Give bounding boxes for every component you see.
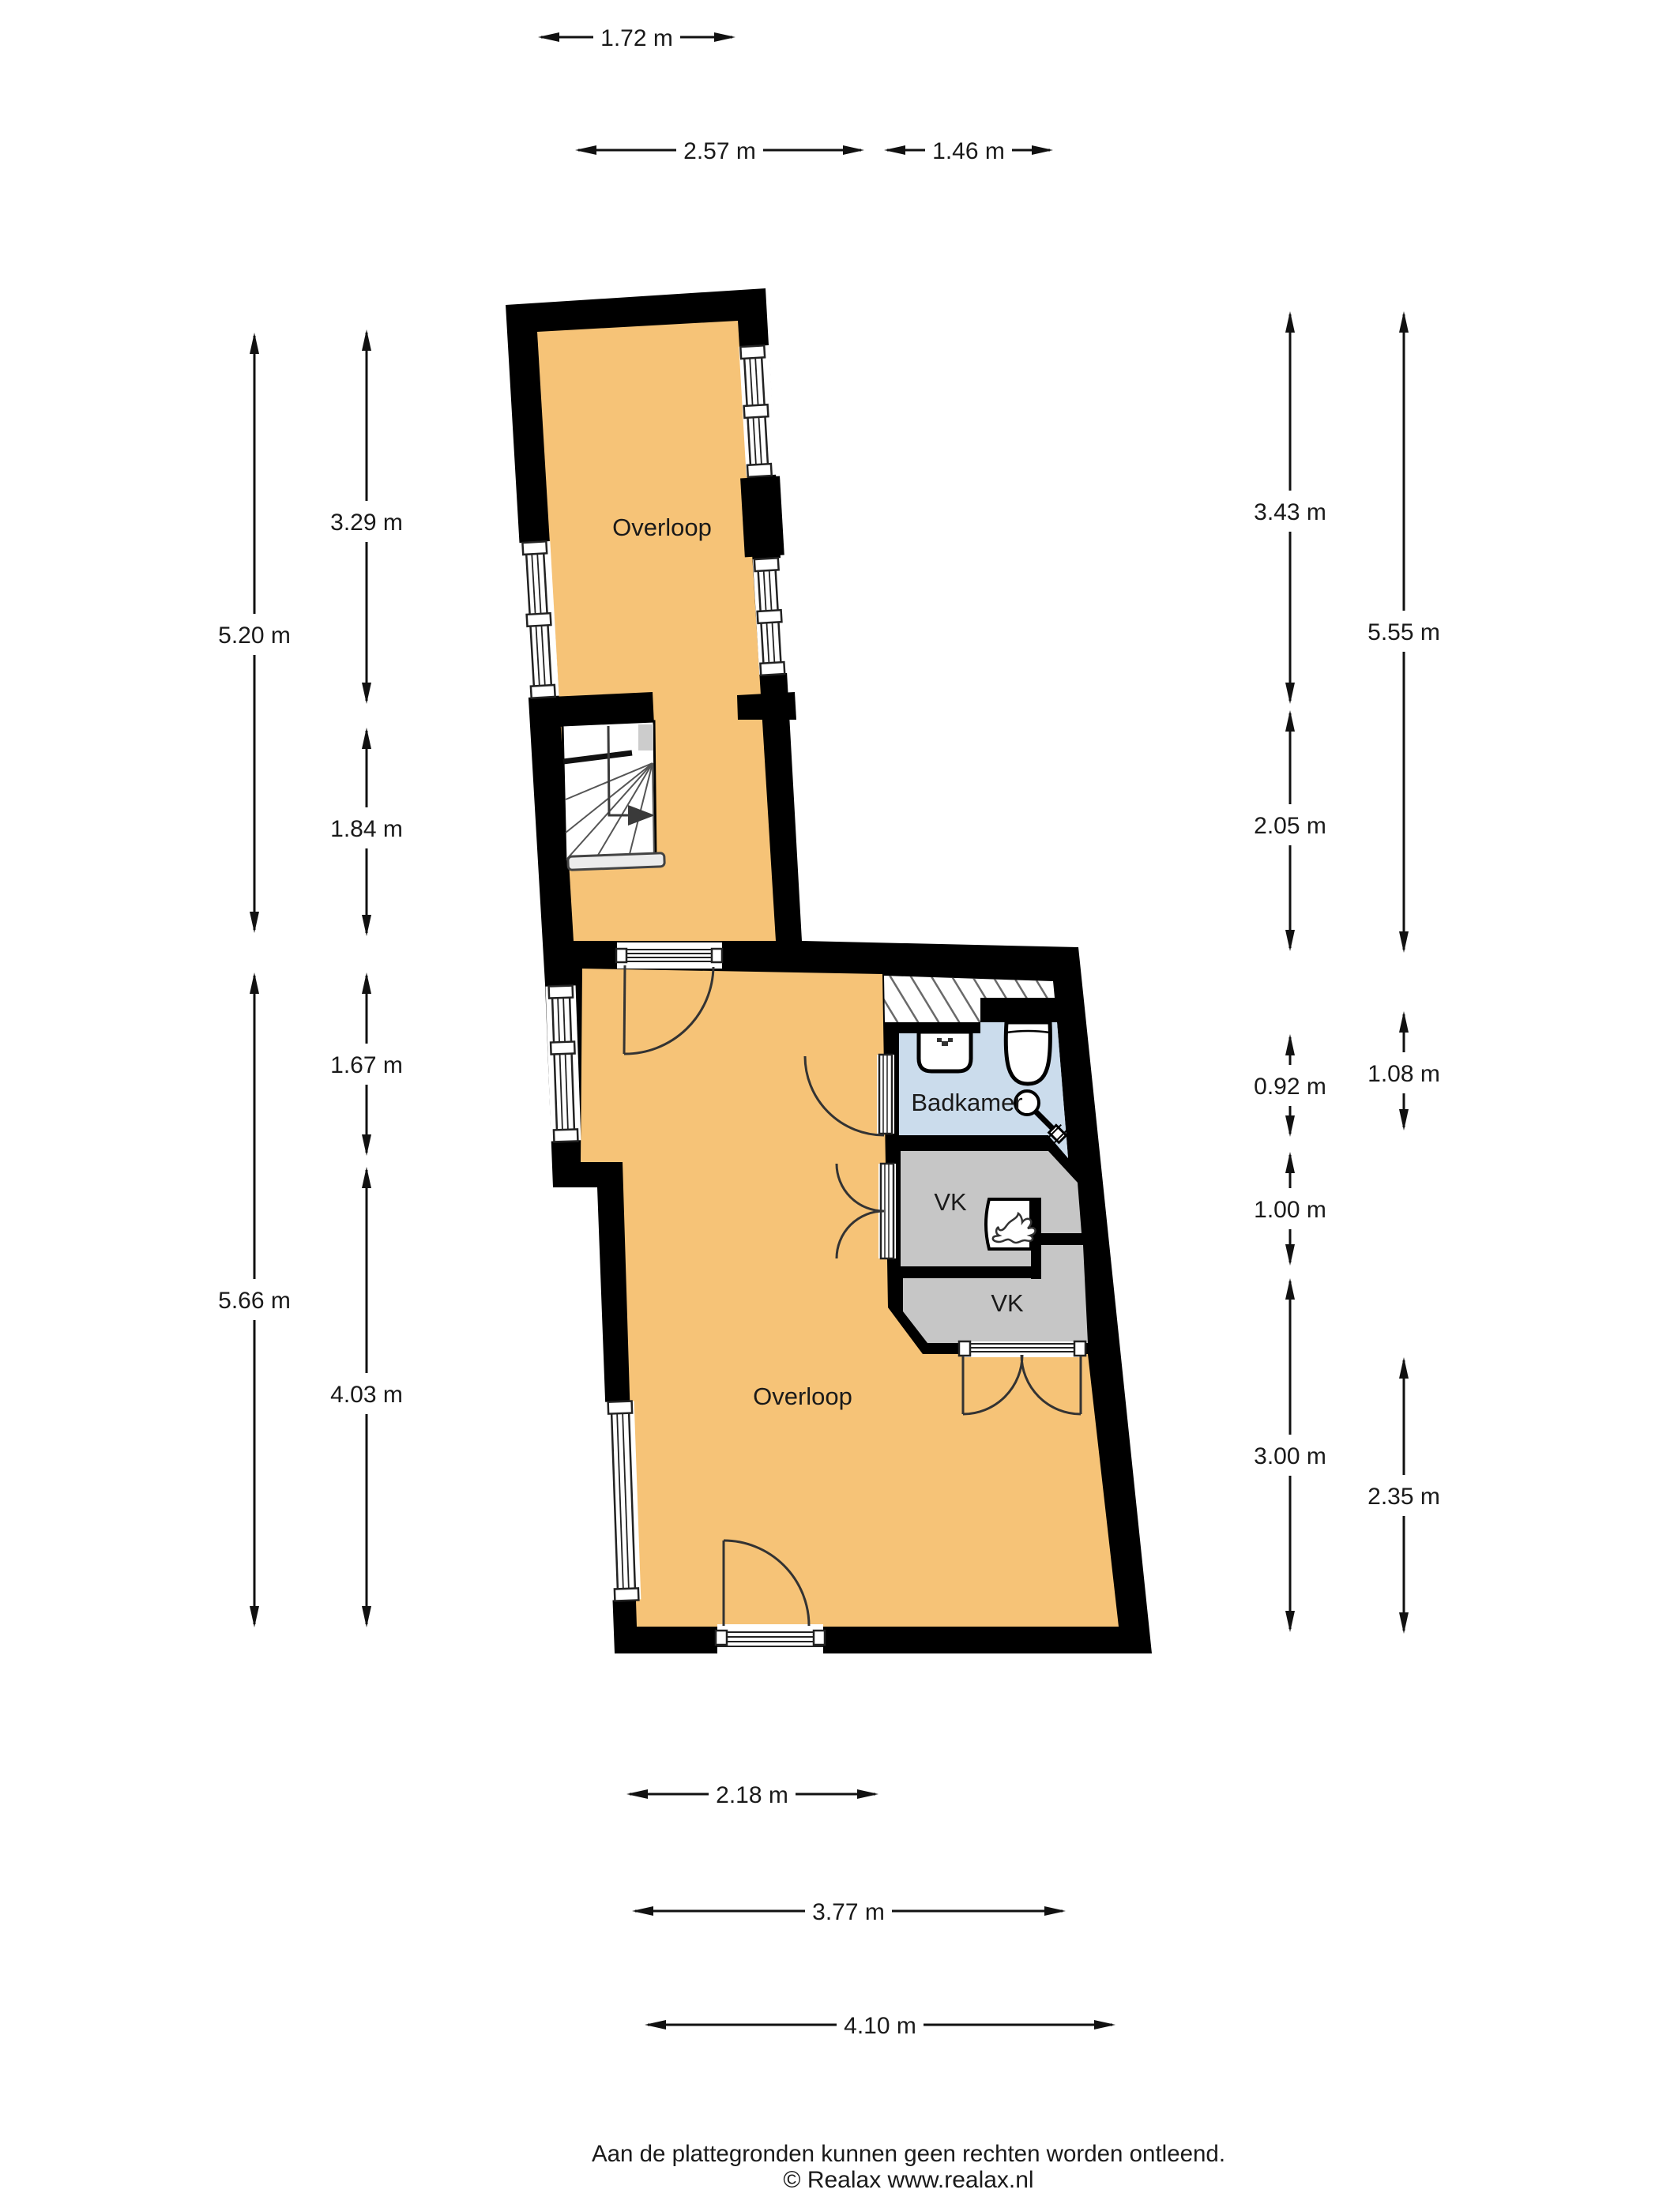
- svg-text:1.84 m: 1.84 m: [330, 816, 403, 842]
- svg-text:VK: VK: [934, 1188, 967, 1216]
- svg-text:4.03 m: 4.03 m: [330, 1382, 403, 1408]
- svg-text:2.57 m: 2.57 m: [683, 138, 756, 164]
- svg-text:3.77 m: 3.77 m: [812, 1899, 885, 1925]
- svg-text:3.43 m: 3.43 m: [1254, 499, 1326, 525]
- svg-text:1.67 m: 1.67 m: [330, 1052, 403, 1078]
- svg-text:Badkamer: Badkamer: [911, 1089, 1022, 1116]
- svg-text:2.05 m: 2.05 m: [1254, 813, 1326, 839]
- svg-text:Aan de plattegronden kunnen ge: Aan de plattegronden kunnen geen rechten…: [592, 2141, 1225, 2167]
- svg-text:5.20 m: 5.20 m: [218, 623, 291, 649]
- svg-text:2.18 m: 2.18 m: [716, 1782, 788, 1808]
- svg-text:4.10 m: 4.10 m: [844, 2013, 916, 2039]
- svg-text:2.35 m: 2.35 m: [1367, 1484, 1440, 1510]
- svg-text:0.92 m: 0.92 m: [1254, 1074, 1326, 1100]
- svg-text:5.55 m: 5.55 m: [1367, 619, 1440, 645]
- svg-text:Overloop: Overloop: [753, 1382, 852, 1410]
- svg-text:3.00 m: 3.00 m: [1254, 1443, 1326, 1469]
- svg-text:3.29 m: 3.29 m: [330, 510, 403, 536]
- svg-text:Overloop: Overloop: [612, 513, 712, 541]
- svg-text:1.08 m: 1.08 m: [1367, 1061, 1440, 1087]
- svg-text:1.00 m: 1.00 m: [1254, 1197, 1326, 1223]
- svg-text:VK: VK: [991, 1289, 1024, 1317]
- svg-text:© Realax www.realax.nl: © Realax www.realax.nl: [783, 2167, 1033, 2193]
- svg-text:5.66 m: 5.66 m: [218, 1288, 291, 1314]
- svg-text:1.72 m: 1.72 m: [600, 25, 673, 51]
- svg-text:1.46 m: 1.46 m: [932, 138, 1005, 164]
